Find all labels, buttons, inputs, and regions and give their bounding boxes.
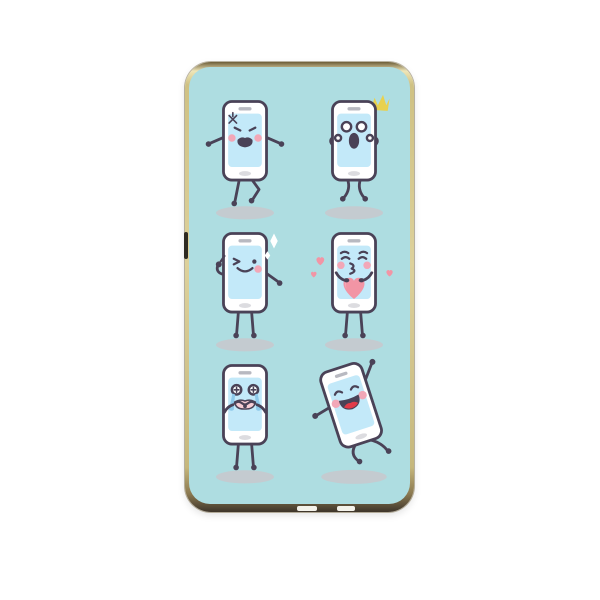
dancing-phone-icon [301,358,407,489]
sparkle-icon [271,233,278,248]
heart-icon [316,257,324,265]
kissing-phone-icon [301,226,407,357]
sticker-cell [191,225,300,357]
crying-phone-icon [192,358,298,489]
sticker-cell [191,358,300,490]
sticker-cell [300,358,409,490]
side-button-cutout [184,232,188,259]
phone-case [185,62,414,512]
heart-icon [386,270,392,277]
sticker-cell [191,93,300,225]
product-photo [0,0,600,600]
winking-phone-icon [192,226,298,357]
charging-port-cutout [297,506,317,511]
sticker-cell [300,93,409,225]
angry-phone-icon [192,94,298,225]
sticker-grid [189,67,410,504]
heart-icon [311,272,317,278]
speaker-cutout [337,506,355,511]
surprised-phone-icon [301,94,407,225]
case-print [189,67,410,504]
sticker-cell [300,225,409,357]
